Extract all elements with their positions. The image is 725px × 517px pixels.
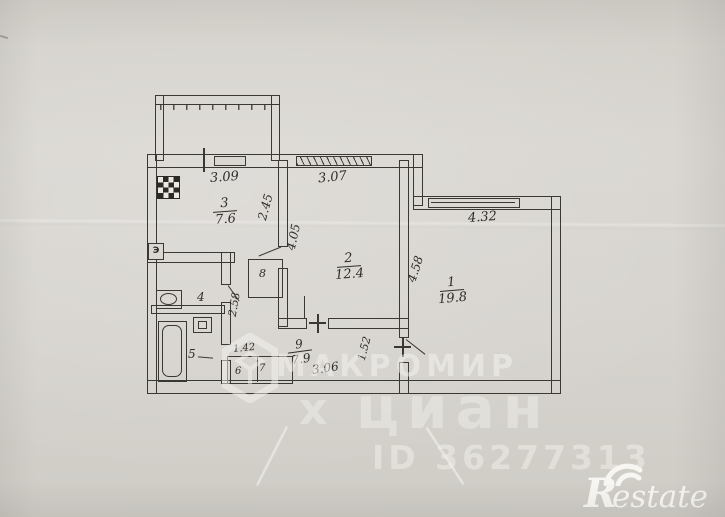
dim-hall-depth: 1.52 [355,335,374,362]
wall-cross-mark2-v [402,338,404,357]
dim-room2-width: 3.07 [317,169,347,187]
wall-room1-left-lower [399,362,409,394]
dim-kitchen-depth: 2.45 [255,192,275,221]
dim-room1-width: 4.32 [468,209,498,226]
listing-id-watermark: ID 36277313 [372,438,651,477]
washbasin-icon [156,290,182,309]
dim-bathroom-depth: 2.58 [226,291,243,317]
paper-edge-mark [0,35,8,39]
room2-number: 2 [336,251,361,268]
room3-number: 3 [212,196,237,213]
room1-area: 19.8 [428,289,477,308]
room2-window [296,156,372,166]
paper-crease-diagonal-right [426,427,465,485]
balcony-railing-hatch [160,104,272,110]
outer-wall-left [147,154,157,394]
wall-cross-mark-h [309,322,326,324]
outer-wall-right [551,196,561,394]
room2-bottom-wall-left [278,318,307,329]
wall-cross-mark2-h [394,346,411,348]
kitchen-door-leaf [259,247,282,257]
bathroom-right-wall-a [221,252,231,285]
dimension-tick [203,148,205,172]
room2-label: 2 12.4 [327,250,371,284]
room3-area: 7.6 [206,211,245,229]
paper-crease-horizontal [0,219,725,229]
electrical-panel-icon: Э [148,243,164,260]
bathtub-icon [158,321,187,382]
balcony-left-wall [155,95,164,161]
room5-leader-line [198,356,213,358]
brand-logo: R estate [584,462,722,514]
room9-label: 9 7.9 [280,335,320,369]
brand-signal-arcs-icon [600,460,646,486]
room5-label: 5 [188,347,196,361]
toilet-icon [193,317,212,333]
ventilation-shaft-icon [157,176,180,199]
outer-wall-bottom [147,380,561,394]
paper-crease-diagonal-left [256,426,288,486]
dim-kitchen-width: 3.09 [210,169,240,186]
room2-door-leaf [304,296,305,319]
room7-label: 7 [259,363,265,374]
brand-name-rest: estate [612,479,708,515]
room4-label: 4 [197,290,205,304]
room3-label: 3 7.6 [205,195,245,229]
room1-label: 1 19.8 [427,273,478,308]
room8-label: 8 [259,267,266,280]
electrical-panel-letter: Э [153,246,160,256]
wall-room1-left-upper [399,160,409,338]
brand-initial: R [584,470,617,517]
wall-cross-mark-v [317,314,319,333]
room6-label: 6 [235,366,241,377]
room1-window-inner-line [431,202,515,203]
room2-bottom-wall-right [328,318,409,329]
kitchen-window [214,156,246,166]
scanned-floor-plan: Э 3.09 3.07 4.32 2.45 4.05 4.58 2.58 1.4… [0,0,725,517]
dim-closet-width: 1.42 [232,342,255,355]
balcony-right-wall [271,95,280,161]
room2-area: 12.4 [328,266,371,284]
